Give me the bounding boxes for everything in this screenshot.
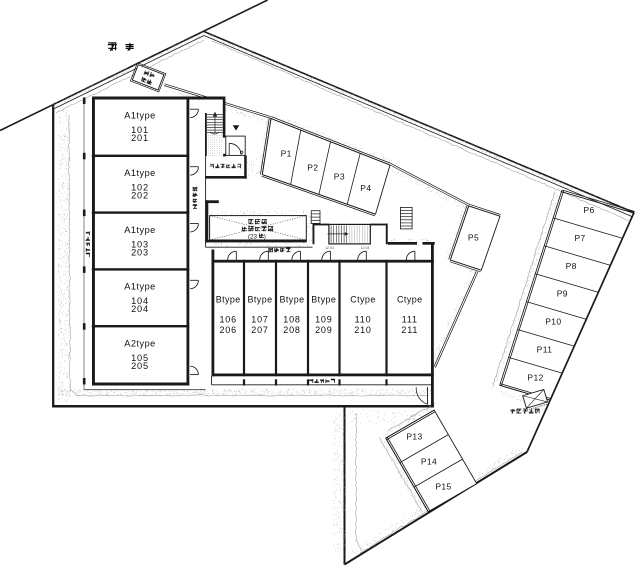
svg-text:A1type: A1type xyxy=(124,168,156,178)
svg-text:108: 108 xyxy=(283,315,300,325)
svg-text:106: 106 xyxy=(219,315,236,325)
svg-text:204: 204 xyxy=(131,304,149,314)
svg-text:P3: P3 xyxy=(334,172,345,182)
svg-text:110: 110 xyxy=(355,315,372,325)
svg-text:(23: (23 xyxy=(248,233,258,240)
svg-text:Btype: Btype xyxy=(311,295,336,305)
svg-text:Ctype: Ctype xyxy=(397,295,423,305)
svg-text:209: 209 xyxy=(315,325,332,335)
svg-text:P1: P1 xyxy=(281,149,292,159)
svg-text:P2: P2 xyxy=(307,162,318,172)
svg-text:109: 109 xyxy=(315,315,332,325)
svg-text:211: 211 xyxy=(401,325,418,335)
svg-text:P13: P13 xyxy=(406,432,422,442)
svg-text:12.04: 12.04 xyxy=(361,246,370,250)
svg-text:P8: P8 xyxy=(566,261,577,271)
svg-text:Ctype: Ctype xyxy=(350,295,376,305)
svg-text:Btype: Btype xyxy=(279,295,304,305)
svg-text:201: 201 xyxy=(131,133,149,143)
svg-text:A1type: A1type xyxy=(124,225,156,235)
svg-text:203: 203 xyxy=(131,247,149,257)
svg-text:210: 210 xyxy=(354,325,371,335)
svg-text:P4: P4 xyxy=(360,183,371,193)
svg-text:P14: P14 xyxy=(421,457,437,467)
svg-text:107: 107 xyxy=(251,315,268,325)
svg-text:208: 208 xyxy=(283,325,300,335)
svg-text:202: 202 xyxy=(131,191,149,201)
svg-text:P5: P5 xyxy=(468,233,479,243)
svg-text:P12: P12 xyxy=(527,372,543,382)
svg-text:Btype: Btype xyxy=(247,295,272,305)
svg-text:A2type: A2type xyxy=(124,338,156,348)
svg-text:P9: P9 xyxy=(557,289,568,299)
svg-text:A1type: A1type xyxy=(124,282,156,292)
svg-text:A1type: A1type xyxy=(124,111,156,121)
svg-text:P10: P10 xyxy=(545,317,561,327)
svg-text:206: 206 xyxy=(219,325,236,335)
svg-text:205: 205 xyxy=(131,361,149,371)
svg-text:P15: P15 xyxy=(435,482,451,492)
svg-text:Btype: Btype xyxy=(216,295,241,305)
svg-text:P11: P11 xyxy=(537,345,553,355)
svg-text:111: 111 xyxy=(402,315,418,325)
svg-text:P6: P6 xyxy=(583,205,594,215)
svg-text:12.04: 12.04 xyxy=(325,246,334,250)
svg-text:P7: P7 xyxy=(574,233,585,243)
svg-text:207: 207 xyxy=(251,325,268,335)
svg-text:): ) xyxy=(264,233,266,240)
